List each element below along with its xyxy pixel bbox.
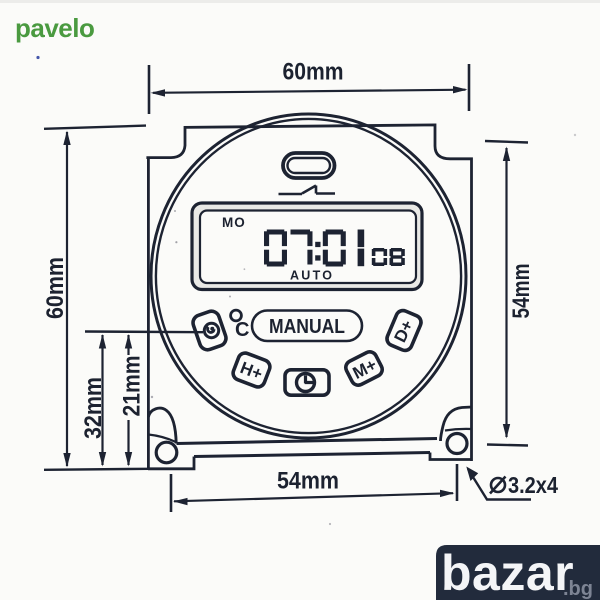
svg-text:32mm: 32mm: [80, 377, 107, 439]
svg-text:C: C: [235, 319, 249, 341]
svg-text:54mm: 54mm: [277, 468, 339, 495]
svg-text:21mm: 21mm: [119, 356, 146, 417]
svg-text:54mm: 54mm: [508, 264, 535, 319]
svg-text:60mm: 60mm: [42, 257, 69, 319]
svg-text:60mm: 60mm: [283, 59, 344, 86]
svg-text:MO: MO: [222, 215, 246, 230]
svg-text:.bg: .bg: [563, 578, 593, 600]
svg-text:bazar: bazar: [441, 545, 574, 600]
svg-text:MANUAL: MANUAL: [269, 316, 345, 338]
svg-text:pavelo: pavelo: [15, 13, 94, 43]
svg-text:3.2x4: 3.2x4: [508, 472, 558, 498]
